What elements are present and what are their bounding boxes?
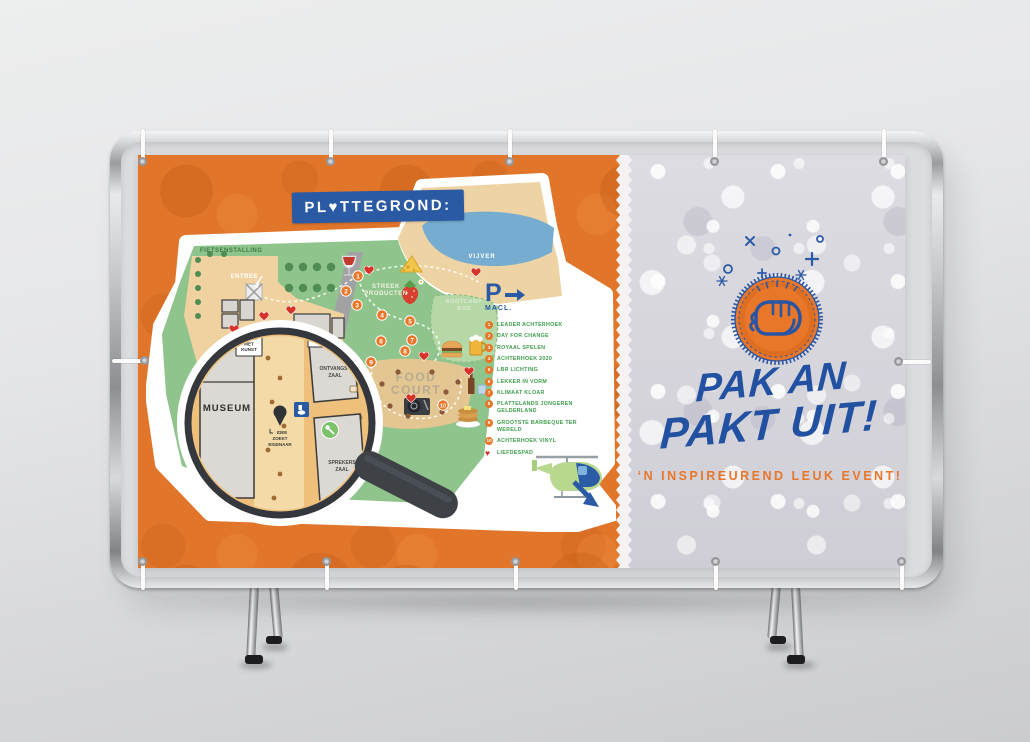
microphone-icon (322, 422, 339, 439)
zip-tie (714, 562, 718, 590)
label-bootcamp-1: BOOTCAMP (446, 299, 483, 305)
legend-number: 6 (485, 378, 493, 386)
event-banner: PL♥TTEGROND: (138, 155, 905, 568)
zigzag-divider (616, 155, 632, 568)
stand-leg-rear-right (767, 584, 781, 641)
legend-number: 9 (485, 419, 493, 427)
rubber-foot (245, 655, 263, 664)
legend-number: 5 (485, 366, 493, 374)
legend-number: 1 (485, 321, 493, 329)
label-streek-2: PRODUCTEN (364, 291, 407, 297)
label-sprekers-2: ZAAL (335, 467, 348, 473)
svg-text:7: 7 (410, 337, 414, 344)
rubber-foot (770, 636, 786, 644)
fist-icon (751, 302, 800, 334)
rubber-foot (266, 636, 282, 644)
grommet (140, 356, 149, 365)
grommet (138, 157, 147, 166)
promo-subheading: ‘N INSPIREUREND LEUK EVENT! (635, 469, 905, 483)
legend-item: 8PLATTELANDS JONGEREN GELDERLAND (485, 400, 607, 415)
label-museum: MUSEUM (203, 403, 251, 414)
legend-item: 4ACHTERHOEK 2020 (485, 355, 607, 363)
map-legend: 1LEADER ACHTERHOEK 2DAY FOR CHANGE 3ROYA… (485, 321, 607, 460)
zip-tie (141, 562, 145, 590)
grommet (710, 157, 719, 166)
legend-number: 10 (485, 437, 493, 445)
coffee-cup-icon (350, 386, 358, 392)
legend-item: 9GROOTSTE BARBEQUE TER WERELD (485, 419, 607, 434)
legend-item: 2DAY FOR CHANGE (485, 332, 607, 340)
legend-item-liefdespad: ♥LIEFDESPAD (485, 449, 607, 457)
map-title: PL♥TTEGROND: (304, 197, 452, 217)
label-entree: ENTREE (231, 274, 258, 280)
svg-text:8: 8 (403, 348, 407, 355)
svg-text:4: 4 (380, 312, 384, 319)
label-idee-1: IDEE (277, 430, 287, 435)
parking-arrow-icon (505, 293, 518, 297)
svg-text:2: 2 (344, 288, 348, 295)
label-sprekers-1: SPREKERS (328, 460, 356, 466)
svg-text:6: 6 (379, 338, 383, 345)
grommet (138, 557, 147, 566)
legend-number: 8 (485, 400, 493, 408)
legend-number: 3 (485, 344, 493, 352)
heart-icon: ♥ (485, 449, 493, 457)
parking-symbol: P (485, 281, 502, 305)
svg-text:3: 3 (355, 302, 359, 309)
fist-badge (730, 272, 824, 366)
foot-shadow (766, 643, 792, 651)
label-vijver: VIJVER (468, 254, 495, 260)
frame-floor-shadow (150, 591, 894, 615)
rubber-foot (787, 655, 805, 664)
label-ontvangst-2: ZAAL (328, 373, 341, 379)
label-food-court-2: COURT (391, 383, 441, 397)
label-idee-3: EIGENAAR (268, 442, 292, 447)
legend-item: 3ROYAAL SPELEN (485, 344, 607, 352)
grommet (505, 157, 514, 166)
label-fietsenstalling: FIETSENSTALLING (200, 248, 262, 254)
grommet (711, 557, 720, 566)
label-idee-2: ZOEKT (273, 436, 288, 441)
zip-tie (900, 562, 904, 590)
map-title-bar: PL♥TTEGROND: (292, 190, 465, 224)
grommet (326, 157, 335, 166)
turntable-icon (404, 398, 430, 415)
zip-tie (514, 562, 518, 590)
legend-item: 1LEADER ACHTERHOEK (485, 321, 607, 329)
legend-item: 5LBR LICHTING (485, 366, 607, 374)
svg-text:1: 1 (356, 273, 360, 280)
svg-text:5: 5 (408, 318, 412, 325)
grommet (894, 357, 903, 366)
legend-number: 2 (485, 332, 493, 340)
label-daten-3: KUNST (241, 347, 257, 352)
zip-tie (899, 360, 931, 364)
burger-icon (442, 341, 462, 357)
legend-number: 7 (485, 389, 493, 397)
legend-item: 6LEKKER IN VORM (485, 378, 607, 386)
zip-tie (325, 562, 329, 590)
toilet-icon (294, 402, 309, 417)
grommet (897, 557, 906, 566)
legend-number: 4 (485, 355, 493, 363)
label-bootcamp-2: BOS (457, 306, 471, 312)
grommet (322, 557, 331, 566)
svg-text:10: 10 (440, 403, 446, 409)
parking-sign: P MACL. (485, 281, 518, 312)
legend-item: 7KLIMAAT KLOAR (485, 389, 607, 397)
label-streek-1: STREEK (372, 284, 400, 290)
banner-mockup-scene: PL♥TTEGROND: (0, 0, 1030, 742)
foot-shadow (262, 643, 288, 651)
legend-item: 10ACHTERHOEK VINYL (485, 437, 607, 445)
label-ontvangst-1: ONTVANGST (319, 366, 350, 372)
grommet (879, 157, 888, 166)
parking-label: MACL. (485, 305, 518, 312)
svg-text:9: 9 (369, 359, 373, 366)
grommet (511, 557, 520, 566)
